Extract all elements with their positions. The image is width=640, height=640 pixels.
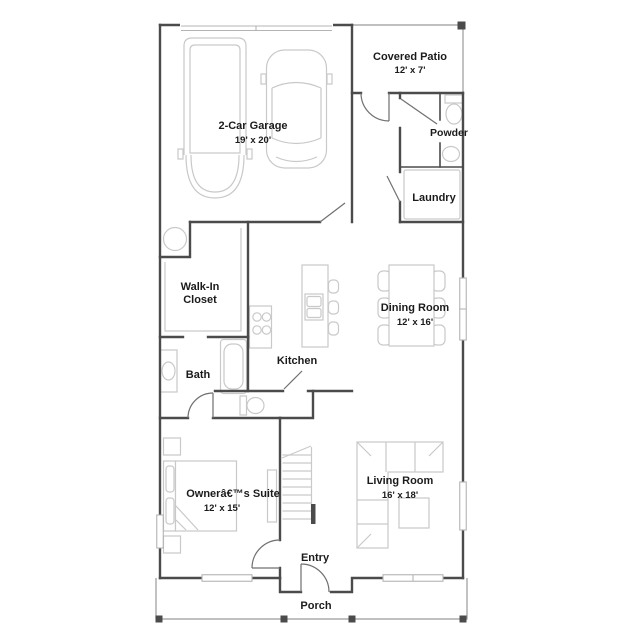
nightstand-top bbox=[164, 438, 181, 455]
nightstand-bottom bbox=[164, 536, 181, 553]
laundry-door bbox=[387, 176, 400, 202]
floor-plan: 2-Car Garage 19' x 20' Covered Patio 12'… bbox=[0, 0, 640, 640]
stairs bbox=[282, 446, 316, 524]
bath-sink bbox=[160, 350, 177, 392]
patio-post bbox=[458, 22, 466, 30]
kitchen-label: Kitchen bbox=[277, 355, 318, 367]
bedroom-door bbox=[252, 540, 280, 568]
walk-in-closet-label-line1: Walk-In bbox=[181, 281, 220, 293]
living-room-label: Living Room bbox=[367, 475, 434, 487]
bath-toilet bbox=[240, 396, 264, 415]
living-window bbox=[460, 482, 467, 530]
laundry-label: Laundry bbox=[412, 192, 456, 204]
dining-room-dims: 12' x 16' bbox=[397, 317, 433, 328]
powder-sink bbox=[443, 147, 460, 162]
living-room-dims: 16' x 18' bbox=[382, 490, 418, 501]
bar-stools bbox=[329, 280, 339, 335]
garage-label: 2-Car Garage bbox=[218, 120, 287, 132]
bedroom-window bbox=[157, 515, 164, 548]
stair-rail-post bbox=[311, 504, 316, 524]
floor-plan-page: 2-Car Garage 19' x 20' Covered Patio 12'… bbox=[0, 0, 640, 640]
front-left-window bbox=[202, 575, 252, 582]
pickup-truck bbox=[178, 38, 252, 198]
covered-patio-label: Covered Patio bbox=[373, 51, 447, 63]
bath-door bbox=[188, 393, 213, 418]
dining-room-label: Dining Room bbox=[381, 302, 450, 314]
garage-door bbox=[180, 21, 333, 31]
porch-label: Porch bbox=[300, 600, 331, 612]
entry-label: Entry bbox=[301, 552, 330, 564]
ottoman bbox=[399, 498, 429, 528]
front-entry-door bbox=[301, 564, 329, 592]
walk-in-closet-label-line2: Closet bbox=[183, 294, 217, 306]
closet-shelves bbox=[165, 228, 241, 331]
powder-door bbox=[401, 99, 437, 124]
powder-toilet bbox=[445, 95, 463, 124]
kitchen-island bbox=[302, 265, 339, 347]
pantry-door bbox=[284, 371, 302, 389]
owners-suite-label: Ownerâ€™s Suite bbox=[186, 488, 280, 500]
sedan-car bbox=[261, 50, 332, 168]
garage-dims: 19' x 20' bbox=[235, 135, 271, 146]
garage-entry-door bbox=[320, 203, 345, 222]
bath-label: Bath bbox=[186, 369, 211, 381]
water-heater bbox=[164, 228, 187, 251]
patio-door bbox=[361, 93, 389, 121]
powder-label: Powder bbox=[430, 127, 468, 139]
bathtub bbox=[221, 340, 247, 394]
range-stove bbox=[250, 306, 272, 348]
owners-suite-dims: 12' x 15' bbox=[204, 503, 240, 514]
covered-patio-dims: 12' x 7' bbox=[395, 65, 426, 76]
